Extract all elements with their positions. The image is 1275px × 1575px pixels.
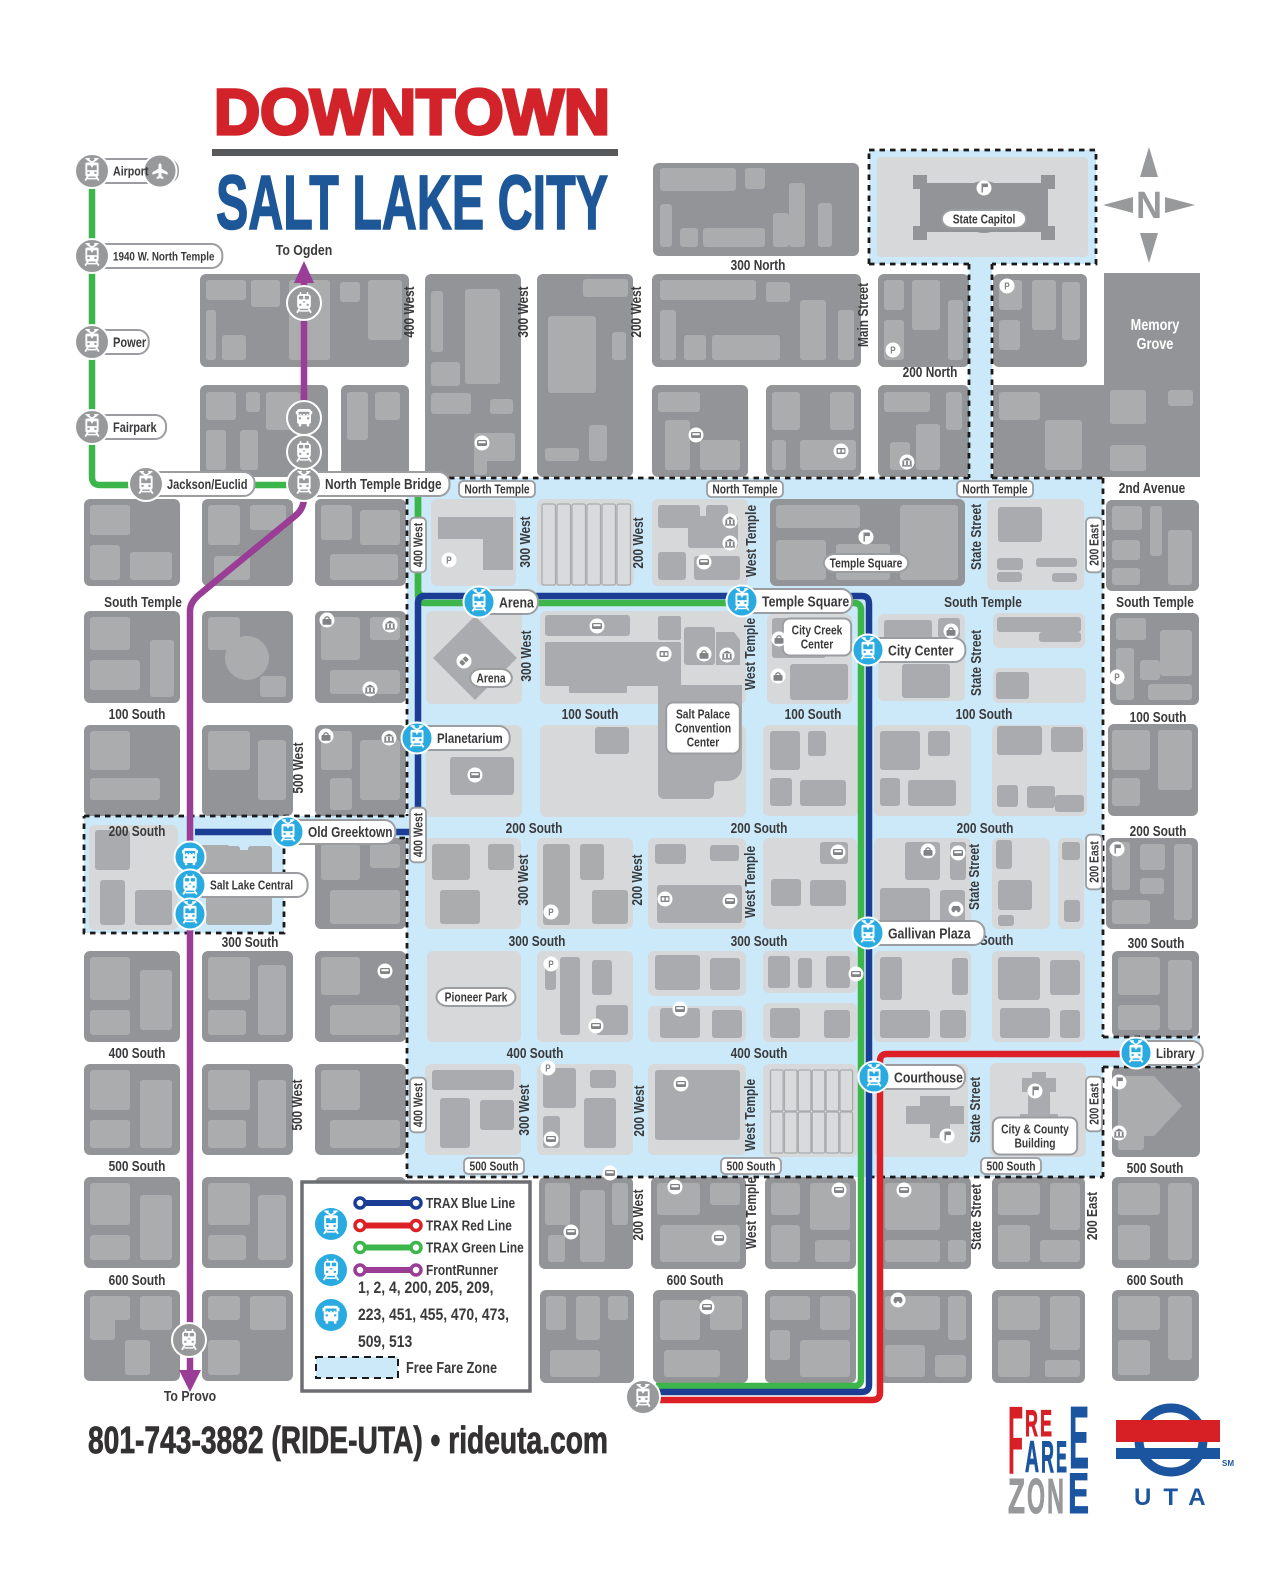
- svg-text:801-743-3882 (RIDE-UTA) • ri: 801-743-3882 (RIDE-UTA) • rideuta.com: [88, 1420, 608, 1462]
- svg-text:DOWNTOWN: DOWNTOWN: [214, 76, 610, 148]
- svg-text:Courthouse: Courthouse: [894, 1069, 963, 1085]
- svg-text:West Temple: West Temple: [742, 1079, 758, 1151]
- svg-text:West Temple: West Temple: [742, 846, 758, 918]
- svg-text:Free Fare Zone: Free Fare Zone: [406, 1360, 497, 1377]
- svg-text:North Temple: North Temple: [712, 484, 777, 497]
- svg-text:City & County: City & County: [1001, 1124, 1069, 1137]
- svg-text:400 South: 400 South: [507, 1045, 564, 1061]
- svg-text:South Temple: South Temple: [104, 594, 182, 610]
- svg-text:South Temple: South Temple: [1116, 594, 1194, 610]
- svg-text:E: E: [1068, 1462, 1089, 1526]
- svg-text:SALT LAKE CITY: SALT LAKE CITY: [216, 160, 608, 246]
- svg-text:P: P: [548, 907, 553, 918]
- svg-text:SM: SM: [1222, 1459, 1234, 1468]
- svg-text:Library: Library: [1156, 1045, 1196, 1061]
- svg-text:Jackson/Euclid: Jackson/Euclid: [167, 477, 247, 492]
- svg-text:200 North: 200 North: [903, 364, 958, 380]
- svg-text:Planetarium: Planetarium: [437, 730, 503, 746]
- svg-text:P: P: [545, 1063, 550, 1074]
- svg-text:Convention: Convention: [675, 723, 731, 736]
- svg-text:200 West: 200 West: [630, 517, 646, 569]
- svg-text:300 West: 300 West: [515, 854, 531, 906]
- svg-text:100 South: 100 South: [785, 706, 842, 722]
- svg-text:400 South: 400 South: [731, 1045, 788, 1061]
- svg-text:200 East: 200 East: [1089, 1083, 1102, 1125]
- svg-text:N: N: [1136, 183, 1162, 226]
- svg-text:Memory: Memory: [1131, 317, 1180, 334]
- svg-text:State Street: State Street: [967, 1076, 983, 1143]
- svg-text:Fairpark: Fairpark: [113, 420, 157, 435]
- svg-text:TRAX Green Line: TRAX Green Line: [426, 1239, 524, 1255]
- svg-text:Airport: Airport: [113, 164, 149, 179]
- svg-text:West Temple: West Temple: [742, 618, 758, 690]
- svg-text:200 South: 200 South: [957, 820, 1014, 836]
- svg-text:City Creek: City Creek: [792, 625, 843, 638]
- svg-text:400 South: 400 South: [109, 1045, 166, 1061]
- svg-text:P: P: [1114, 672, 1119, 683]
- svg-text:500 West: 500 West: [290, 742, 306, 794]
- svg-text:North Temple: North Temple: [464, 484, 529, 497]
- svg-text:Temple Square: Temple Square: [830, 558, 903, 571]
- svg-text:Gallivan Plaza: Gallivan Plaza: [888, 925, 971, 941]
- svg-text:600 South: 600 South: [667, 1272, 724, 1288]
- svg-text:400 West: 400 West: [401, 286, 417, 338]
- svg-text:2nd Avenue: 2nd Avenue: [1119, 480, 1185, 496]
- svg-text:Pioneer Park: Pioneer Park: [445, 992, 508, 1005]
- svg-text:Salt Lake Central: Salt Lake Central: [210, 880, 293, 893]
- svg-text:100 South: 100 South: [562, 706, 619, 722]
- svg-text:200 West: 200 West: [631, 1085, 647, 1137]
- svg-text:500 South: 500 South: [727, 1161, 776, 1174]
- svg-text:200 South: 200 South: [506, 820, 563, 836]
- svg-text:South Temple: South Temple: [944, 594, 1022, 610]
- svg-text:500 South: 500 South: [1127, 1160, 1184, 1176]
- svg-text:600 South: 600 South: [1127, 1272, 1184, 1288]
- svg-text:N: N: [1047, 1470, 1064, 1524]
- svg-text:400 West: 400 West: [413, 1083, 426, 1127]
- svg-text:State Capitol: State Capitol: [953, 214, 1016, 227]
- svg-text:Main Street: Main Street: [855, 282, 871, 347]
- svg-text:600 South: 600 South: [109, 1272, 166, 1288]
- svg-text:TRAX Blue Line: TRAX Blue Line: [426, 1195, 515, 1211]
- svg-text:City Center: City Center: [888, 642, 954, 658]
- svg-text:100 South: 100 South: [956, 706, 1013, 722]
- svg-text:P: P: [890, 345, 895, 356]
- svg-text:100 South: 100 South: [1130, 709, 1187, 725]
- svg-text:100 South: 100 South: [109, 706, 166, 722]
- svg-text:400 West: 400 West: [413, 813, 426, 857]
- svg-text:State Street: State Street: [968, 629, 984, 696]
- svg-text:200 West: 200 West: [629, 854, 645, 906]
- svg-text:State Street: State Street: [968, 1183, 984, 1250]
- svg-text:500 South: 500 South: [470, 1161, 519, 1174]
- svg-text:Salt Palace: Salt Palace: [676, 709, 730, 722]
- svg-text:Building: Building: [1015, 1138, 1056, 1151]
- svg-text:TRAX Red Line: TRAX Red Line: [426, 1217, 512, 1233]
- svg-text:North Temple Bridge: North Temple Bridge: [325, 476, 442, 492]
- svg-text:P: P: [446, 555, 451, 566]
- svg-text:FrontRunner: FrontRunner: [426, 1262, 498, 1278]
- svg-text:To Provo: To Provo: [164, 1388, 216, 1404]
- svg-text:300 West: 300 West: [515, 286, 531, 338]
- svg-text:Power: Power: [113, 335, 146, 350]
- svg-text:200 South: 200 South: [1130, 823, 1187, 839]
- svg-text:State Street: State Street: [968, 503, 984, 570]
- svg-text:1, 2, 4, 200, 205, 209,: 1, 2, 4, 200, 205, 209,: [358, 1279, 494, 1298]
- svg-text:200 South: 200 South: [731, 820, 788, 836]
- svg-text:300 South: 300 South: [1128, 935, 1185, 951]
- svg-text:509, 513: 509, 513: [358, 1333, 413, 1352]
- svg-text:P: P: [548, 959, 553, 970]
- svg-text:200 West: 200 West: [630, 1189, 646, 1241]
- svg-text:500 West: 500 West: [289, 1079, 305, 1131]
- svg-text:200 West: 200 West: [628, 286, 644, 338]
- svg-text:West Temple: West Temple: [743, 505, 759, 577]
- svg-text:500 South: 500 South: [987, 1161, 1036, 1174]
- svg-text:200 South: 200 South: [109, 823, 166, 839]
- svg-text:UTA: UTA: [1134, 1484, 1218, 1511]
- svg-text:O: O: [1027, 1470, 1045, 1524]
- svg-text:200 East: 200 East: [1084, 1191, 1100, 1240]
- svg-text:P: P: [1004, 281, 1009, 292]
- svg-text:1940 W. North Temple: 1940 W. North Temple: [113, 250, 214, 263]
- svg-text:West Temple: West Temple: [743, 1177, 759, 1249]
- svg-text:Center: Center: [687, 737, 720, 750]
- svg-text:Arena: Arena: [476, 673, 506, 686]
- svg-text:300 South: 300 South: [731, 933, 788, 949]
- svg-text:300 West: 300 West: [518, 630, 534, 682]
- svg-text:State Street: State Street: [966, 843, 982, 910]
- svg-text:Temple Square: Temple Square: [762, 593, 850, 609]
- svg-text:Z: Z: [1008, 1470, 1025, 1524]
- svg-text:300 West: 300 West: [517, 516, 533, 568]
- svg-text:Center: Center: [801, 639, 834, 652]
- svg-text:North Temple: North Temple: [962, 484, 1027, 497]
- svg-text:300 South: 300 South: [222, 934, 279, 950]
- svg-text:500 South: 500 South: [109, 1158, 166, 1174]
- svg-text:300 West: 300 West: [516, 1084, 532, 1136]
- svg-text:Old Greektown: Old Greektown: [308, 824, 393, 840]
- svg-text:Arena: Arena: [499, 594, 534, 610]
- svg-text:300 South: 300 South: [509, 933, 566, 949]
- svg-text:223, 451, 455, 470, 473,: 223, 451, 455, 470, 473,: [358, 1306, 509, 1325]
- svg-text:200 East: 200 East: [1089, 524, 1102, 566]
- svg-text:400 West: 400 West: [413, 523, 426, 567]
- svg-text:200 East: 200 East: [1089, 841, 1102, 883]
- svg-text:Grove: Grove: [1137, 336, 1174, 353]
- svg-text:300 North: 300 North: [731, 257, 786, 273]
